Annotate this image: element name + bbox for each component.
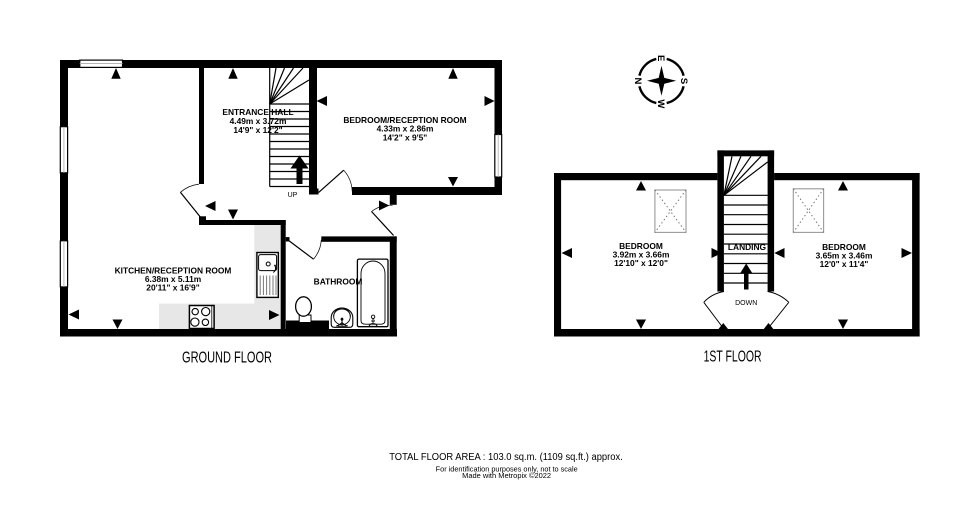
svg-text:12'0" x 11'4": 12'0" x 11'4" [820, 259, 869, 269]
svg-text:20'11" x 16'9": 20'11" x 16'9" [146, 283, 199, 293]
svg-text:UP: UP [288, 192, 298, 199]
svg-text:12'10" x 12'0": 12'10" x 12'0" [614, 258, 668, 268]
svg-text:TOTAL FLOOR AREA : 103.0 sq.m.: TOTAL FLOOR AREA : 103.0 sq.m. (1109 sq.… [389, 452, 623, 463]
svg-text:S: S [678, 78, 689, 84]
svg-text:LANDING: LANDING [728, 242, 766, 252]
svg-text:E: E [655, 55, 666, 61]
svg-text:Made with Metropix ©2022: Made with Metropix ©2022 [462, 471, 551, 480]
svg-text:GROUND FLOOR: GROUND FLOOR [182, 350, 272, 367]
svg-text:14'9" x 12'2": 14'9" x 12'2" [233, 125, 282, 135]
svg-text:1ST FLOOR: 1ST FLOOR [704, 349, 762, 366]
svg-text:N: N [632, 78, 643, 85]
svg-text:W: W [655, 99, 666, 108]
svg-text:DOWN: DOWN [735, 300, 757, 307]
svg-text:BATHROOM: BATHROOM [314, 277, 363, 287]
svg-text:14'2" x 9'5": 14'2" x 9'5" [383, 133, 428, 143]
